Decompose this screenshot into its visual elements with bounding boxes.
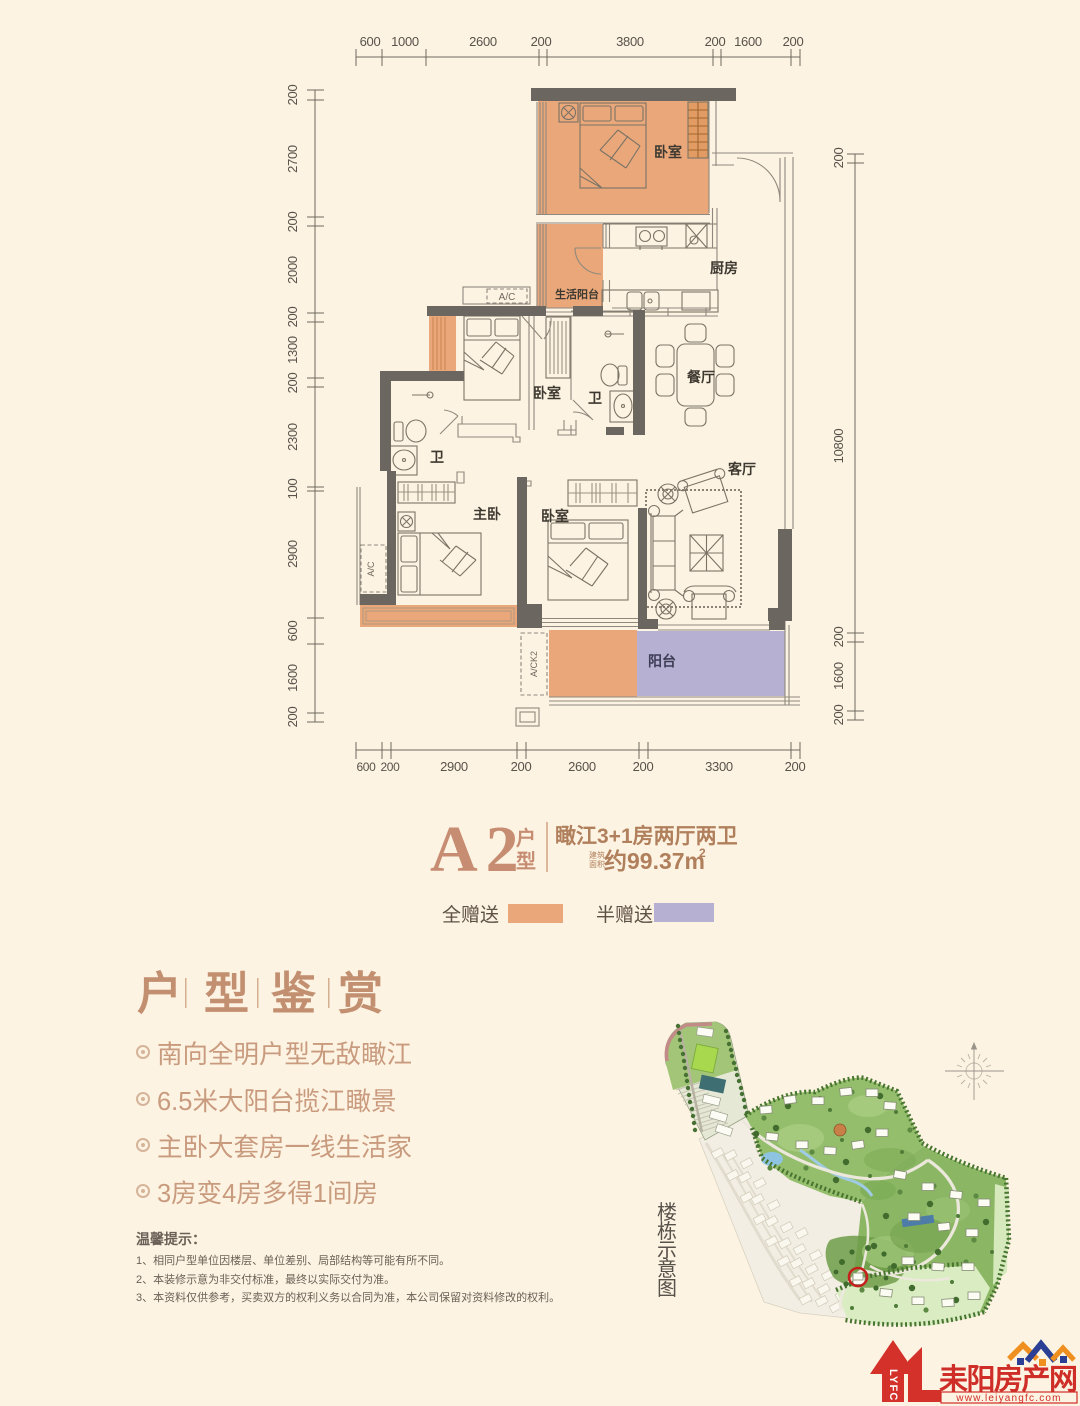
svg-text:2900: 2900	[285, 540, 300, 568]
svg-text:600: 600	[360, 34, 381, 49]
svg-text:LYFC: LYFC	[887, 1369, 899, 1402]
svg-text:A/C: A/C	[366, 561, 376, 577]
svg-text:面积: 面积	[589, 859, 605, 869]
svg-text:1000: 1000	[391, 34, 419, 49]
svg-text:1600: 1600	[831, 662, 846, 690]
svg-text:200: 200	[783, 34, 804, 49]
svg-text:3、本资料仅供参考，买卖双方的权利义务以合同为准，本公司保留: 3、本资料仅供参考，买卖双方的权利义务以合同为准，本公司保留对资料修改的权利。	[136, 1290, 560, 1304]
svg-text:200: 200	[531, 34, 552, 49]
svg-text:生活阳台: 生活阳台	[555, 287, 599, 301]
svg-text:全赠送: 全赠送	[442, 904, 499, 926]
svg-text:200: 200	[705, 34, 726, 49]
svg-text:卧室: 卧室	[654, 144, 682, 160]
svg-text:户型鉴赏: 户型鉴赏	[137, 968, 405, 1019]
svg-text:约99.37m: 约99.37m	[604, 848, 705, 874]
svg-text:600: 600	[285, 621, 300, 642]
svg-text:2600: 2600	[469, 34, 497, 49]
svg-text:200: 200	[785, 759, 806, 774]
svg-text:南向全明户型无敌瞰江: 南向全明户型无敌瞰江	[157, 1041, 412, 1069]
svg-text:卫: 卫	[430, 449, 444, 465]
svg-text:卫: 卫	[588, 390, 602, 406]
svg-text:3房变4房多得1间房: 3房变4房多得1间房	[157, 1180, 378, 1208]
svg-text:200: 200	[511, 759, 532, 774]
svg-text:耒阳房产网: 耒阳房产网	[939, 1363, 1077, 1396]
svg-text:A2: A2	[430, 813, 527, 886]
svg-text:主卧大套房一线生活家: 主卧大套房一线生活家	[157, 1134, 412, 1162]
svg-text:1300: 1300	[285, 336, 300, 364]
svg-text:2600: 2600	[568, 759, 596, 774]
svg-text:餐厅: 餐厅	[686, 369, 715, 385]
svg-text:6.5米大阳台揽江瞰景: 6.5米大阳台揽江瞰景	[157, 1088, 396, 1116]
svg-text:阳台: 阳台	[648, 653, 676, 669]
svg-text:600: 600	[356, 760, 376, 774]
svg-text:2000: 2000	[285, 256, 300, 284]
svg-text:温馨提示：: 温馨提示：	[136, 1231, 206, 1247]
svg-text:200: 200	[285, 307, 300, 328]
svg-text:主卧: 主卧	[473, 506, 501, 522]
svg-text:建筑: 建筑	[589, 850, 605, 860]
svg-text:200: 200	[380, 760, 400, 774]
svg-text:1、相同户型单位因楼层、单位差别、局部结构等可能有所不同。: 1、相同户型单位因楼层、单位差别、局部结构等可能有所不同。	[136, 1253, 450, 1267]
svg-text:10800: 10800	[831, 429, 846, 464]
svg-text:1600: 1600	[734, 34, 762, 49]
svg-text:2900: 2900	[440, 759, 468, 774]
svg-text:客厅: 客厅	[727, 461, 756, 477]
svg-text:3800: 3800	[616, 34, 644, 49]
svg-text:200: 200	[285, 373, 300, 394]
svg-text:100: 100	[285, 479, 300, 500]
svg-text:2300: 2300	[285, 423, 300, 451]
svg-text:A/CK2: A/CK2	[529, 651, 539, 677]
svg-text:1600: 1600	[285, 664, 300, 692]
svg-text:户: 户	[516, 826, 536, 850]
svg-text:A/C: A/C	[499, 292, 516, 303]
svg-text:卧室: 卧室	[533, 385, 561, 401]
svg-text:3300: 3300	[705, 759, 733, 774]
svg-text:2700: 2700	[285, 145, 300, 173]
svg-text:图: 图	[657, 1278, 677, 1300]
svg-text:200: 200	[285, 212, 300, 233]
svg-text:200: 200	[633, 759, 654, 774]
svg-text:200: 200	[285, 85, 300, 106]
svg-text:200: 200	[831, 627, 846, 648]
svg-text:www.leiyangfc.com: www.leiyangfc.com	[955, 1393, 1061, 1404]
svg-text:卧室: 卧室	[541, 508, 569, 524]
svg-text:瞰江3+1房两厅两卫: 瞰江3+1房两厅两卫	[555, 824, 738, 848]
svg-text:200: 200	[285, 707, 300, 728]
svg-text:2、本装修示意为非交付标准，最终以实际交付为准。: 2、本装修示意为非交付标准，最终以实际交付为准。	[136, 1272, 395, 1286]
svg-text:厨房: 厨房	[710, 260, 738, 276]
svg-text:200: 200	[831, 148, 846, 169]
svg-text:半赠送: 半赠送	[596, 904, 653, 926]
svg-text:200: 200	[831, 705, 846, 726]
svg-text:2: 2	[699, 846, 706, 860]
svg-text:型: 型	[516, 850, 536, 873]
